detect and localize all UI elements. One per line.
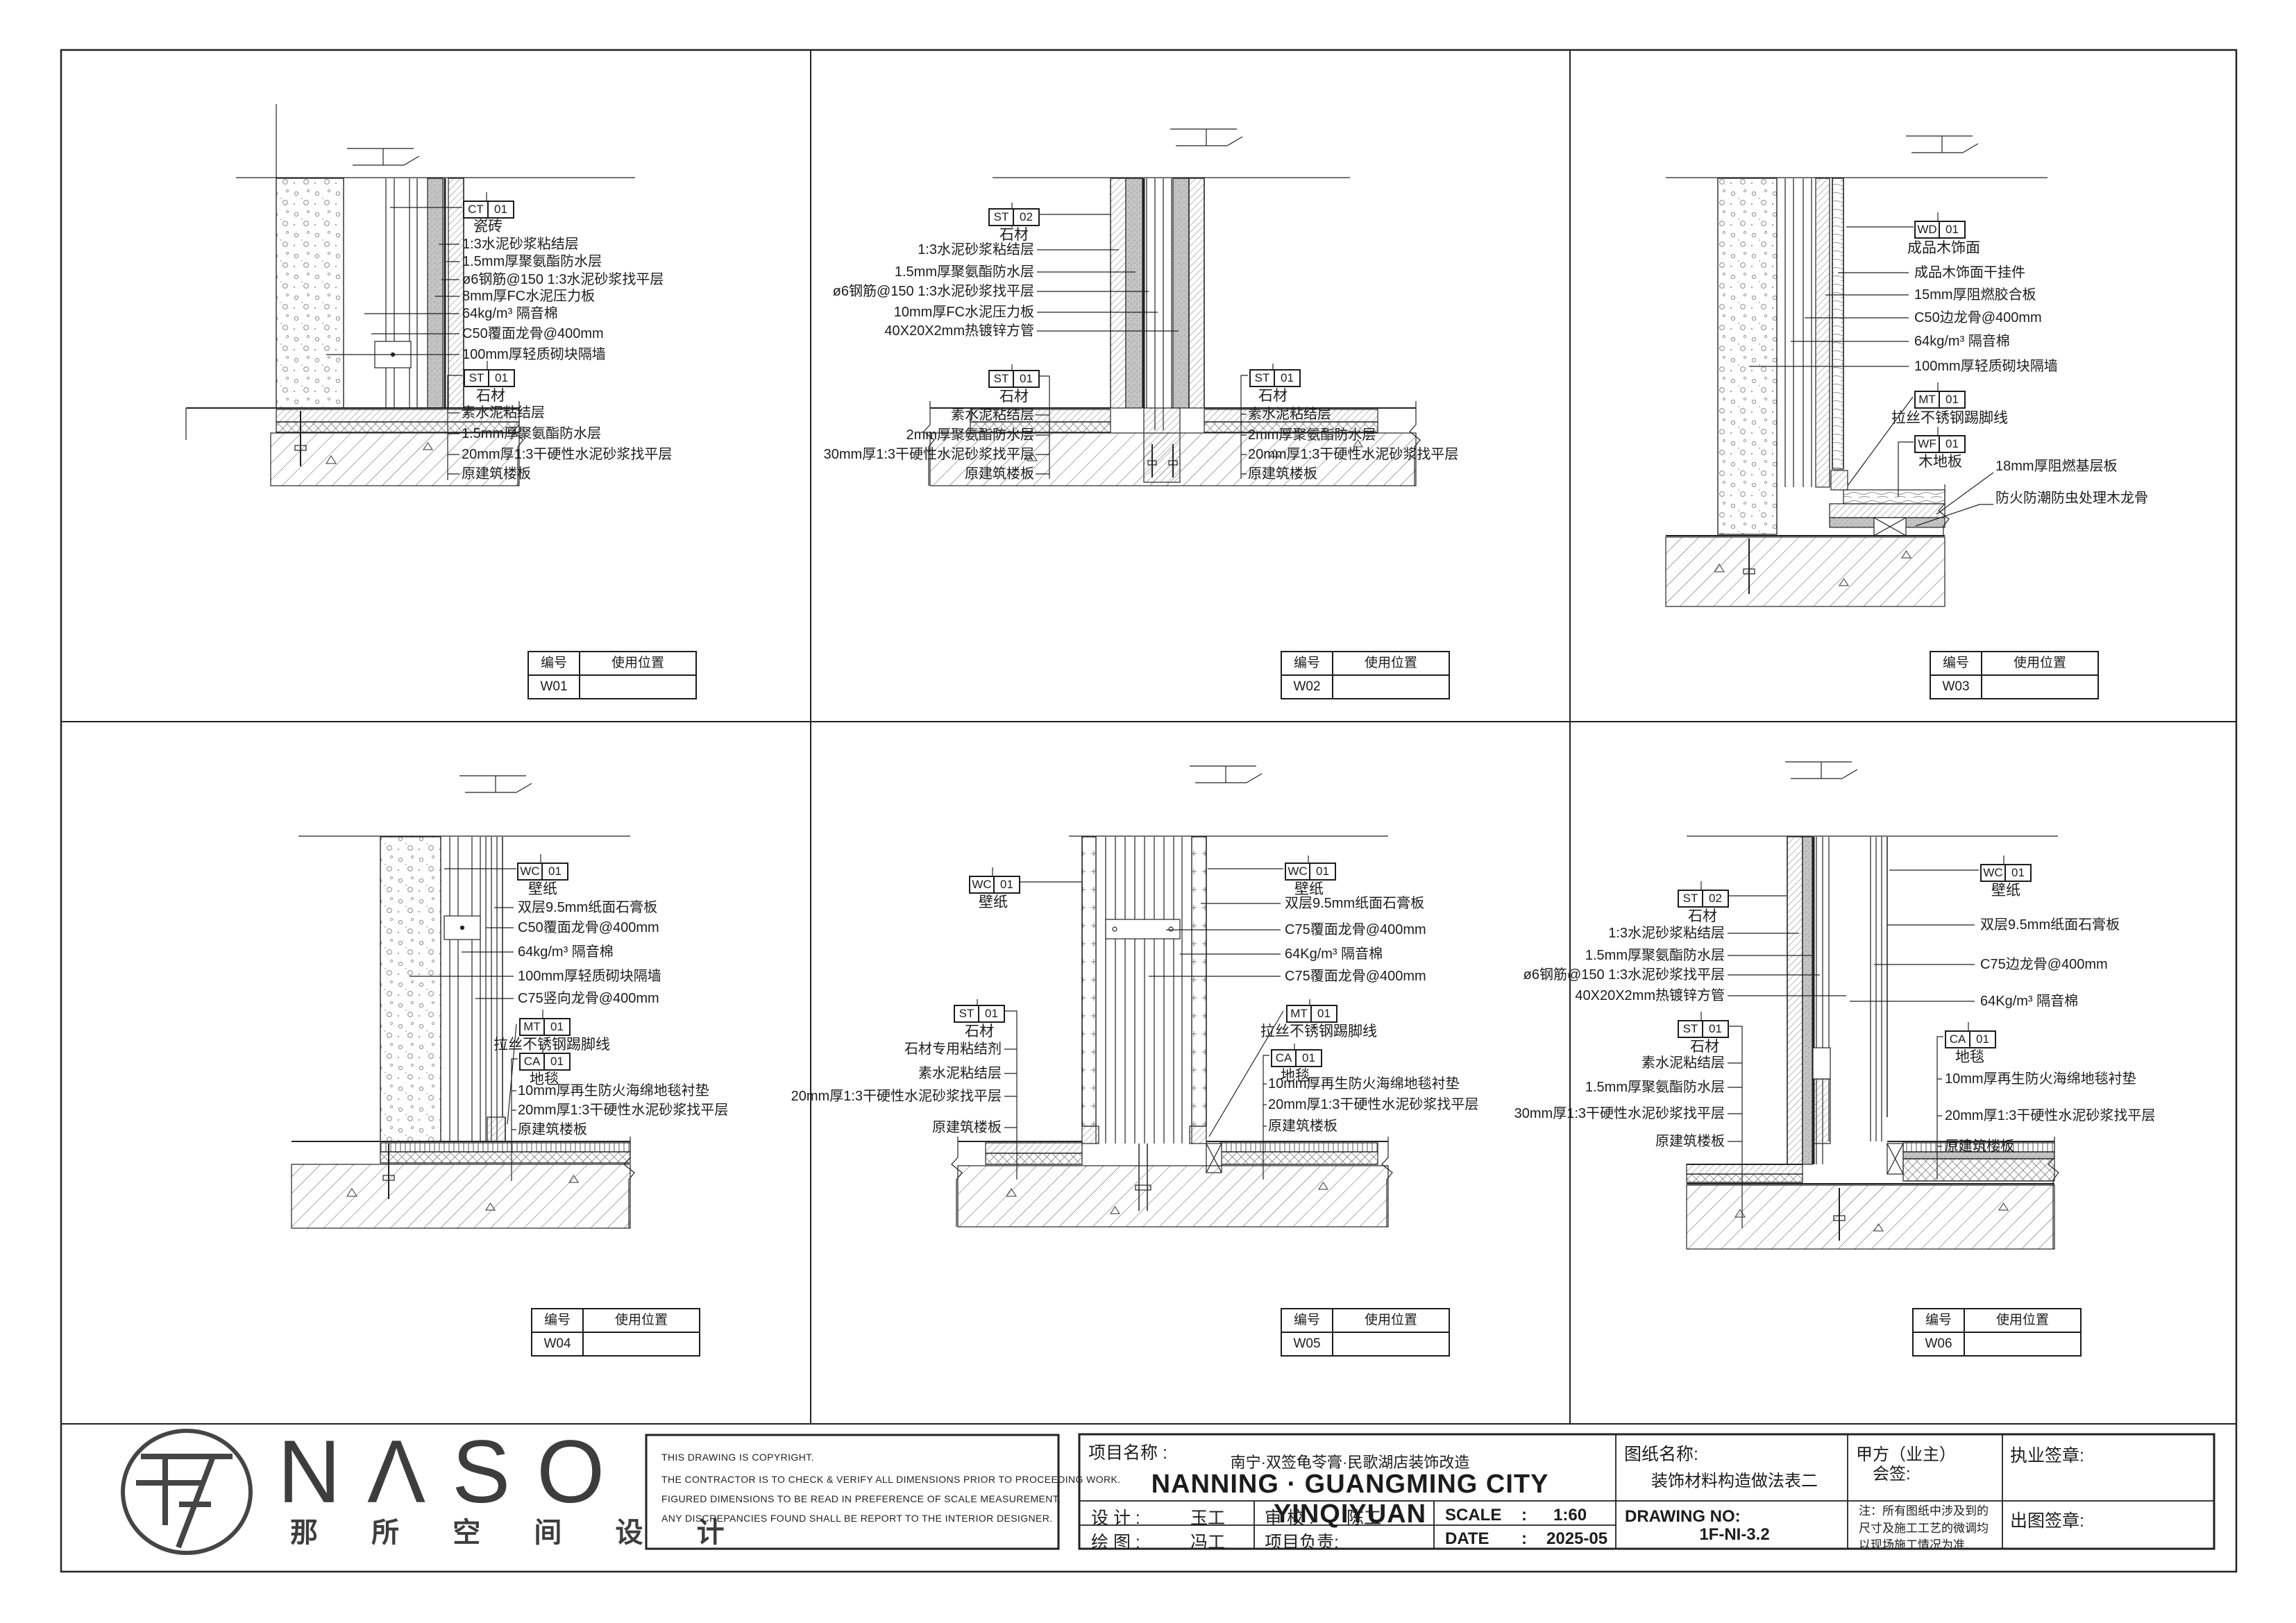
layer-label: 素水泥粘结层 <box>1248 407 1331 422</box>
layer-label: 1:3水泥砂浆粘结层 <box>1608 926 1725 941</box>
tag-num: 01 <box>1297 1051 1321 1066</box>
date-sep: : <box>1521 1529 1527 1549</box>
layer-label: 1.5mm厚聚氨酯防水层 <box>462 254 602 269</box>
layer-label: 8mm厚FC水泥压力板 <box>462 289 595 304</box>
layer-label: 30mm厚1:3干硬性水泥砂浆找平层 <box>824 447 1034 462</box>
layer-label: C75覆面龙骨@400mm <box>1285 969 1426 984</box>
table-header: 编号 <box>1914 1309 1965 1332</box>
layer-label: 64kg/m³ 隔音棉 <box>462 306 558 321</box>
sheet-name-value: 装饰材料构造做法表二 <box>1621 1467 1848 1491</box>
layer-label: 1:3水泥砂浆粘结层 <box>462 237 579 252</box>
layer-label: 10mm厚FC水泥压力板 <box>894 305 1034 320</box>
tag-name: 拉丝不锈钢踢脚线 <box>493 1033 610 1054</box>
table-cell-id: W02 <box>1282 676 1333 698</box>
table-header: 编号 <box>532 1309 584 1332</box>
tag-code: WC <box>1286 864 1310 879</box>
layer-label: C75覆面龙骨@400mm <box>1285 922 1426 937</box>
layer-label: 20mm厚1:3干硬性水泥砂浆找平层 <box>1945 1108 2155 1123</box>
sheet-name-label: 图纸名称: <box>1624 1441 1698 1465</box>
layer-label: 64Kg/m³ 隔音棉 <box>1285 946 1383 962</box>
layer-label: 原建筑楼板 <box>932 1120 1002 1135</box>
layer-label: 20mm厚1:3干硬性水泥砂浆找平层 <box>1268 1097 1478 1112</box>
tag-code: WF <box>1916 436 1940 452</box>
layer-label: 15mm厚阻燃胶合板 <box>1914 287 2036 303</box>
tag-code: WC <box>1982 865 2006 881</box>
tag-code: ST <box>1251 371 1275 386</box>
tag-name: 木地板 <box>1918 450 1962 471</box>
layer-label: C50边龙骨@400mm <box>1914 310 2042 325</box>
layer-label: C50覆面龙骨@400mm <box>518 920 659 935</box>
table-cell-id: W05 <box>1282 1333 1333 1355</box>
tag-name: 壁纸 <box>528 878 557 899</box>
layer-label: 30mm厚1:3干硬性水泥砂浆找平层 <box>1514 1106 1725 1121</box>
tag-num: 01 <box>1940 436 1964 452</box>
layer-label: 原建筑楼板 <box>1655 1134 1725 1149</box>
copyright-line: FIGURED DIMENSIONS TO BE READ IN PREFERE… <box>661 1493 1061 1504</box>
draftsman-value: 冯工 <box>1173 1529 1242 1554</box>
layer-label: 64Kg/m³ 隔音棉 <box>1980 994 2078 1009</box>
table-header: 编号 <box>1282 652 1333 674</box>
table-cell-location <box>1333 676 1449 698</box>
tag-num: 01 <box>2006 865 2030 881</box>
layer-label: 素水泥粘结层 <box>462 405 545 420</box>
tag-code: MT <box>521 1019 545 1035</box>
layer-label: 20mm厚1:3干硬性水泥砂浆找平层 <box>518 1103 728 1118</box>
tag-code: ST <box>990 210 1014 225</box>
tag-name: 石材 <box>476 384 505 405</box>
tag-code: ST <box>1679 891 1703 906</box>
layer-label: 10mm厚再生防火海绵地毯衬垫 <box>518 1083 709 1098</box>
layer-label: ø6钢筋@150 1:3水泥砂浆找平层 <box>1523 967 1725 983</box>
tag-code: MT <box>1916 392 1940 407</box>
draftsman-label: 绘 图 : <box>1091 1529 1140 1554</box>
table-cell-id: W04 <box>532 1333 584 1355</box>
tag-name: 石材 <box>1258 384 1288 405</box>
tag-code: MT <box>1288 1006 1312 1021</box>
table-header: 使用位置 <box>580 652 695 674</box>
tag-num: 01 <box>979 1006 1004 1021</box>
revision-note: 注：所有图纸中涉及到的尺寸及施工工艺的微调均以现场施工情况为准. <box>1859 1503 1999 1554</box>
usage-table-w06: 编号使用位置 W06 <box>1912 1308 2082 1357</box>
layer-label: 原建筑楼板 <box>1248 466 1317 482</box>
layer-label: 原建筑楼板 <box>462 466 531 482</box>
table-cell-location <box>1982 676 2097 698</box>
layer-label: C75竖向龙骨@400mm <box>518 991 659 1006</box>
designer-value: 玉工 <box>1173 1504 1242 1529</box>
scale-value: 1:60 <box>1553 1506 1587 1525</box>
tag-name: 壁纸 <box>979 891 1008 912</box>
layer-label: C75边龙骨@400mm <box>1980 957 2108 972</box>
tag-num: 01 <box>995 877 1019 892</box>
table-header: 编号 <box>1931 652 1982 674</box>
layer-label: 原建筑楼板 <box>1268 1119 1337 1134</box>
layer-label: ø6钢筋@150 1:3水泥砂浆找平层 <box>833 284 1034 299</box>
layer-label: 2mm厚聚氨酯防水层 <box>906 427 1034 443</box>
project-manager-label: 项目负责: <box>1265 1529 1339 1554</box>
drawing-no-value: 1F-NI-3.2 <box>1621 1525 1848 1545</box>
tag-code: CA <box>1272 1051 1297 1066</box>
naso-logo-text: NΛSO <box>278 1420 631 1523</box>
tag-name: 石材 <box>1688 905 1717 926</box>
tag-code: WD <box>1916 222 1940 237</box>
layer-label: 1.5mm厚聚氨酯防水层 <box>1585 1080 1725 1095</box>
tag-name: 石材 <box>999 223 1029 244</box>
table-cell-location <box>580 676 695 698</box>
drawing-sheet: CT01 瓷砖 1:3水泥砂浆粘结层 1.5mm厚聚氨酯防水层 ø6钢筋@150… <box>0 0 2296 1623</box>
tag-code: CA <box>521 1054 545 1069</box>
tag-name: 石材 <box>999 385 1029 406</box>
layer-label: 防火防潮防虫处理木龙骨 <box>1995 491 2148 506</box>
layer-label: 石材专用粘结剂 <box>904 1042 1002 1057</box>
usage-table-w03: 编号使用位置 W03 <box>1930 651 2099 699</box>
date-value: 2025-05 <box>1546 1529 1607 1549</box>
scale-label: SCALE <box>1445 1506 1501 1525</box>
checker-label: 审 校 : <box>1265 1504 1314 1529</box>
layer-label: 1.5mm厚聚氨酯防水层 <box>895 264 1034 280</box>
tag-num: 01 <box>545 1054 569 1069</box>
layer-label: 双层9.5mm纸面石膏板 <box>1285 896 1424 911</box>
checker-value: 陈工 <box>1329 1504 1399 1529</box>
layer-label: 1.5mm厚聚氨酯防水层 <box>462 426 601 441</box>
usage-table-w04: 编号使用位置 W04 <box>531 1308 700 1357</box>
tag-num: 01 <box>1275 371 1299 386</box>
table-header: 编号 <box>1282 1309 1333 1332</box>
layer-label: 64kg/m³ 隔音棉 <box>1914 334 2010 349</box>
layer-label: 100mm厚轻质砌块隔墙 <box>462 347 606 362</box>
table-header: 使用位置 <box>1333 1309 1449 1332</box>
tag-num: 01 <box>489 371 514 386</box>
designer-label: 设 计 : <box>1091 1504 1140 1529</box>
layer-label: 20mm厚1:3干硬性水泥砂浆找平层 <box>1248 447 1458 462</box>
tag-code: ST <box>465 371 489 386</box>
layer-label: 原建筑楼板 <box>518 1122 587 1137</box>
drawing-no-label: DRAWING NO: <box>1625 1507 1741 1527</box>
layer-label: 原建筑楼板 <box>965 466 1034 482</box>
layer-label: 64kg/m³ 隔音棉 <box>518 944 614 960</box>
table-cell-id: W06 <box>1914 1333 1965 1355</box>
copyright-line: ANY DISCREPANCIES FOUND SHALL BE REPORT … <box>661 1513 1053 1524</box>
layer-label: 40X20X2mm热镀锌方管 <box>1575 988 1725 1003</box>
tag-num: 01 <box>1014 371 1038 386</box>
tag-num: 01 <box>1703 1021 1728 1037</box>
table-header: 使用位置 <box>1982 652 2097 674</box>
tag-code: WC <box>518 864 543 879</box>
usage-table-w01: 编号使用位置 W01 <box>527 651 697 699</box>
layer-label: 18mm厚阻燃基层板 <box>1995 459 2118 474</box>
layer-label: 100mm厚轻质砌块隔墙 <box>1914 359 2058 374</box>
layer-label: 20mm厚1:3干硬性水泥砂浆找平层 <box>462 447 672 462</box>
layer-label: 双层9.5mm纸面石膏板 <box>518 900 657 915</box>
tag-num: 01 <box>1310 864 1335 879</box>
layer-label: 100mm厚轻质砌块隔墙 <box>518 969 661 984</box>
table-header: 使用位置 <box>584 1309 699 1332</box>
tag-name: 石材 <box>965 1020 994 1041</box>
tag-code: ST <box>1679 1021 1703 1037</box>
tag-name: 壁纸 <box>1991 879 2020 900</box>
table-header: 使用位置 <box>1333 652 1449 674</box>
tag-code: CA <box>1946 1032 1970 1047</box>
tag-num: 01 <box>1312 1006 1336 1021</box>
table-header: 使用位置 <box>1965 1309 2080 1332</box>
license-seal-label: 执业签章: <box>2010 1442 2084 1467</box>
layer-label: 素水泥粘结层 <box>951 407 1034 423</box>
table-cell-location <box>1965 1333 2080 1355</box>
tag-num: 01 <box>545 1019 569 1035</box>
layer-label: 素水泥粘结层 <box>918 1066 1002 1081</box>
tag-num: 01 <box>1970 1032 1995 1047</box>
layer-label: 10mm厚再生防火海绵地毯衬垫 <box>1945 1071 2136 1087</box>
table-cell-id: W03 <box>1931 676 1982 698</box>
usage-table-w05: 编号使用位置 W05 <box>1281 1308 1450 1357</box>
tag-name: 石材 <box>1690 1035 1719 1056</box>
layer-label: 双层9.5mm纸面石膏板 <box>1980 917 2120 933</box>
tag-num: 02 <box>1014 210 1038 225</box>
date-label: DATE <box>1445 1529 1489 1549</box>
issue-seal-label: 出图签章: <box>2010 1507 2084 1532</box>
naso-logo-icon <box>123 1431 251 1553</box>
tag-num: 01 <box>1940 222 1964 237</box>
layer-label: C50覆面龙骨@400mm <box>462 326 604 341</box>
layer-label: 1:3水泥砂浆粘结层 <box>918 242 1034 257</box>
copyright-line: THIS DRAWING IS COPYRIGHT. <box>661 1452 814 1463</box>
client-sign-label: 会签: <box>1873 1460 1911 1484</box>
copyright-line: THE CONTRACTOR IS TO CHECK & VERIFY ALL … <box>661 1474 1121 1485</box>
layer-label: 成品木饰面干挂件 <box>1914 265 2025 280</box>
tag-name: 瓷砖 <box>473 215 503 236</box>
tag-num: 01 <box>1940 392 1964 407</box>
table-cell-location <box>1333 1333 1449 1355</box>
table-cell-location <box>584 1333 699 1355</box>
layer-label: 2mm厚聚氨酯防水层 <box>1248 427 1376 443</box>
scale-sep: : <box>1521 1506 1527 1525</box>
layer-label: 40X20X2mm热镀锌方管 <box>884 323 1034 339</box>
layer-label: 原建筑楼板 <box>1945 1139 2014 1154</box>
tag-code: ST <box>955 1006 979 1021</box>
usage-table-w02: 编号使用位置 W02 <box>1281 651 1450 699</box>
tag-name: 成品木饰面 <box>1907 237 1980 257</box>
tag-name: 拉丝不锈钢踢脚线 <box>1891 407 2008 427</box>
tag-name: 地毯 <box>1955 1046 1984 1067</box>
layer-label: ø6钢筋@150 1:3水泥砂浆找平层 <box>462 272 664 287</box>
layer-label: 10mm厚再生防火海绵地毯衬垫 <box>1268 1076 1460 1091</box>
tag-code: ST <box>990 371 1014 386</box>
tag-code: WC <box>970 877 995 892</box>
table-cell-id: W01 <box>529 676 580 698</box>
layer-label: 20mm厚1:3干硬性水泥砂浆找平层 <box>791 1089 1002 1104</box>
tag-num: 02 <box>1703 891 1728 906</box>
tag-name: 拉丝不锈钢踢脚线 <box>1260 1020 1377 1041</box>
table-header: 编号 <box>529 652 580 674</box>
tag-num: 01 <box>543 864 567 879</box>
layer-label: 素水泥粘结层 <box>1641 1055 1725 1071</box>
layer-label: 1.5mm厚聚氨酯防水层 <box>1585 948 1725 963</box>
